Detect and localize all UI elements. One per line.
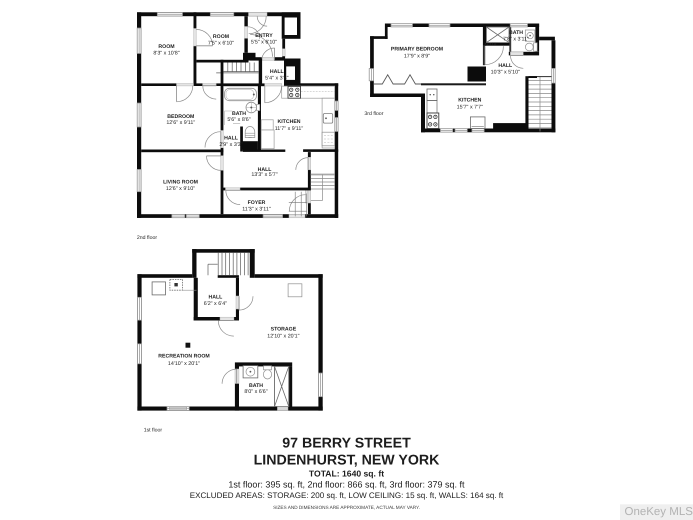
svg-text:17'9" x 8'9": 17'9" x 8'9" xyxy=(404,53,430,59)
svg-text:6'2" x 6'4": 6'2" x 6'4" xyxy=(204,301,227,307)
svg-text:5'4" x 3'6": 5'4" x 3'6" xyxy=(265,76,288,82)
svg-text:8'3" x 10'8": 8'3" x 10'8" xyxy=(153,51,179,57)
svg-text:2'9" x 3'3": 2'9" x 3'3" xyxy=(219,142,242,148)
svg-text:HALL: HALL xyxy=(498,63,513,69)
svg-text:HALL: HALL xyxy=(208,294,223,300)
svg-text:ROOM: ROOM xyxy=(158,44,174,50)
svg-text:STORAGE: STORAGE xyxy=(271,327,297,333)
svg-text:7'5" x 6'10": 7'5" x 6'10" xyxy=(208,40,234,46)
svg-text:BATH: BATH xyxy=(509,30,523,36)
svg-text:TOTAL: 1640 sq. ft: TOTAL: 1640 sq. ft xyxy=(309,469,384,479)
svg-text:KITCHEN: KITCHEN xyxy=(458,98,481,104)
svg-text:1st floor: 1st floor xyxy=(144,427,163,433)
svg-text:7'8" x 3'11": 7'8" x 3'11" xyxy=(503,36,529,42)
svg-text:13'3" x 5'7": 13'3" x 5'7" xyxy=(251,172,277,178)
svg-text:12'6" x 9'10": 12'6" x 9'10" xyxy=(166,186,195,192)
svg-text:LINDENHURST, NEW YORK: LINDENHURST, NEW YORK xyxy=(254,452,441,468)
svg-text:1st floor: 395 sq. ft, 2nd flo: 1st floor: 395 sq. ft, 2nd floor: 866 sq… xyxy=(228,480,465,490)
svg-text:EXCLUDED AREAS: STORAGE: 200 s: EXCLUDED AREAS: STORAGE: 200 sq. ft, LOW… xyxy=(190,491,504,500)
svg-text:ENTRY: ENTRY xyxy=(255,33,273,39)
svg-text:11'3" x 3'11": 11'3" x 3'11" xyxy=(242,207,271,213)
svg-text:8'0" x 6'6": 8'0" x 6'6" xyxy=(244,389,267,395)
svg-text:OneKey MLS: OneKey MLS xyxy=(625,506,693,518)
svg-text:LIVING ROOM: LIVING ROOM xyxy=(163,180,198,186)
svg-text:4'1" x 3'11": 4'1" x 3'11" xyxy=(485,42,498,45)
svg-text:15'7" x 7'7": 15'7" x 7'7" xyxy=(457,104,483,110)
svg-text:BEDROOM: BEDROOM xyxy=(167,114,194,120)
svg-text:5'6" x 8'6": 5'6" x 8'6" xyxy=(227,117,250,123)
svg-text:97 BERRY STREET: 97 BERRY STREET xyxy=(282,435,411,451)
svg-text:10'3" x 5'10": 10'3" x 5'10" xyxy=(491,70,520,76)
svg-text:ROOM: ROOM xyxy=(213,34,229,40)
svg-text:BATH: BATH xyxy=(232,111,246,117)
svg-text:PRIMARY BEDROOM: PRIMARY BEDROOM xyxy=(391,47,443,53)
svg-text:11'7" x 9'11": 11'7" x 9'11" xyxy=(275,126,304,132)
svg-text:SIZES AND DIMENSIONS ARE APPRO: SIZES AND DIMENSIONS ARE APPROXIMATE, AC… xyxy=(273,505,420,510)
svg-text:12'10" x 20'1": 12'10" x 20'1" xyxy=(267,333,299,339)
svg-text:12'6" x 9'11": 12'6" x 9'11" xyxy=(166,120,195,126)
svg-text:FOYER: FOYER xyxy=(248,200,266,206)
svg-text:KITCHEN: KITCHEN xyxy=(277,119,300,125)
svg-text:5'5" x 6'10": 5'5" x 6'10" xyxy=(251,40,277,46)
svg-text:3rd floor: 3rd floor xyxy=(364,111,383,117)
svg-text:HALL: HALL xyxy=(224,135,239,141)
svg-text:14'10" x 20'1": 14'10" x 20'1" xyxy=(168,361,200,367)
svg-text:RECREATION ROOM: RECREATION ROOM xyxy=(158,354,210,360)
svg-text:2nd floor: 2nd floor xyxy=(137,235,157,241)
svg-text:HALL: HALL xyxy=(270,69,285,75)
